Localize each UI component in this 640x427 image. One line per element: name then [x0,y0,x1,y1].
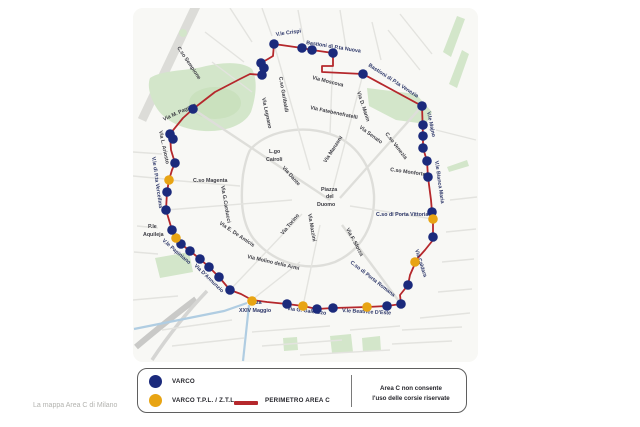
street-label: Cairoli [266,157,283,163]
street-label: XXIV Maggio [239,308,272,314]
varco-tpl-icon [149,394,162,407]
perimeter-line-icon [234,401,258,405]
varco-dot [403,280,413,290]
street-label: Piazza [321,187,337,193]
varco-dot [396,299,406,309]
varco-dot [307,45,317,55]
varco-dot [162,187,172,197]
varco-tpl-dot [410,257,420,267]
varco-dot [195,254,205,264]
varco-dot [328,303,338,313]
varco-dot [418,131,428,141]
legend-note: Area C non consente l'uso delle corsie r… [358,384,464,404]
varco-dot [418,120,428,130]
varco-dot [204,262,214,272]
varco-tpl-dot [362,302,372,312]
varco-dot [382,301,392,311]
varco-dot [422,156,432,166]
varco-tpl-dot [164,175,174,185]
street-label: C.so Magenta [193,178,227,184]
varco-dot [188,104,198,114]
varco-tpl-dot [298,301,308,311]
varco-dot [423,172,433,182]
varco-dot [328,48,338,58]
varco-dot [167,225,177,235]
varco-dot [214,272,224,282]
street-label: L.go [269,149,281,155]
varco-tpl-dot [247,296,257,306]
milan-map-canvas: C.so SempioneVia M. PaganoV.le CrispiBas… [133,8,478,362]
varco-dot [161,205,171,215]
varco-dot [417,101,427,111]
street-label: P.le [148,224,157,230]
varco-dot [428,232,438,242]
varco-label: VARCO [172,378,195,385]
street-label: Duomo [317,202,336,208]
varco-dot [168,134,178,144]
varco-dot [418,143,428,153]
street-label: Aquileja [143,232,164,238]
varco-tpl-dot [428,214,438,224]
street-label: C.so di Porta Vittoria [376,212,428,218]
varco-dot [282,299,292,309]
varco-dot [269,39,279,49]
varco-dot [225,285,235,295]
area-c-map: C.so SempioneVia M. PaganoV.le CrispiBas… [133,8,478,362]
varco-dot [170,158,180,168]
varco-dot [297,43,307,53]
article-page: C.so SempioneVia M. PaganoV.le CrispiBas… [0,0,640,427]
image-caption: La mappa Area C di Milano [33,401,129,410]
map-legend: VARCO VARCO T.P.L. / Z.T.L. PERIMETRO AR… [137,368,467,413]
legend-divider [351,375,352,407]
varco-icon [149,375,162,388]
perimeter-label: PERIMETRO AREA C [265,397,330,404]
street-label: del [326,194,334,200]
varco-dot [256,58,266,68]
varco-dot [312,304,322,314]
varco-dot [358,69,368,79]
varco-dot [185,246,195,256]
varco-tpl-label: VARCO T.P.L. / Z.T.L. [172,397,236,404]
